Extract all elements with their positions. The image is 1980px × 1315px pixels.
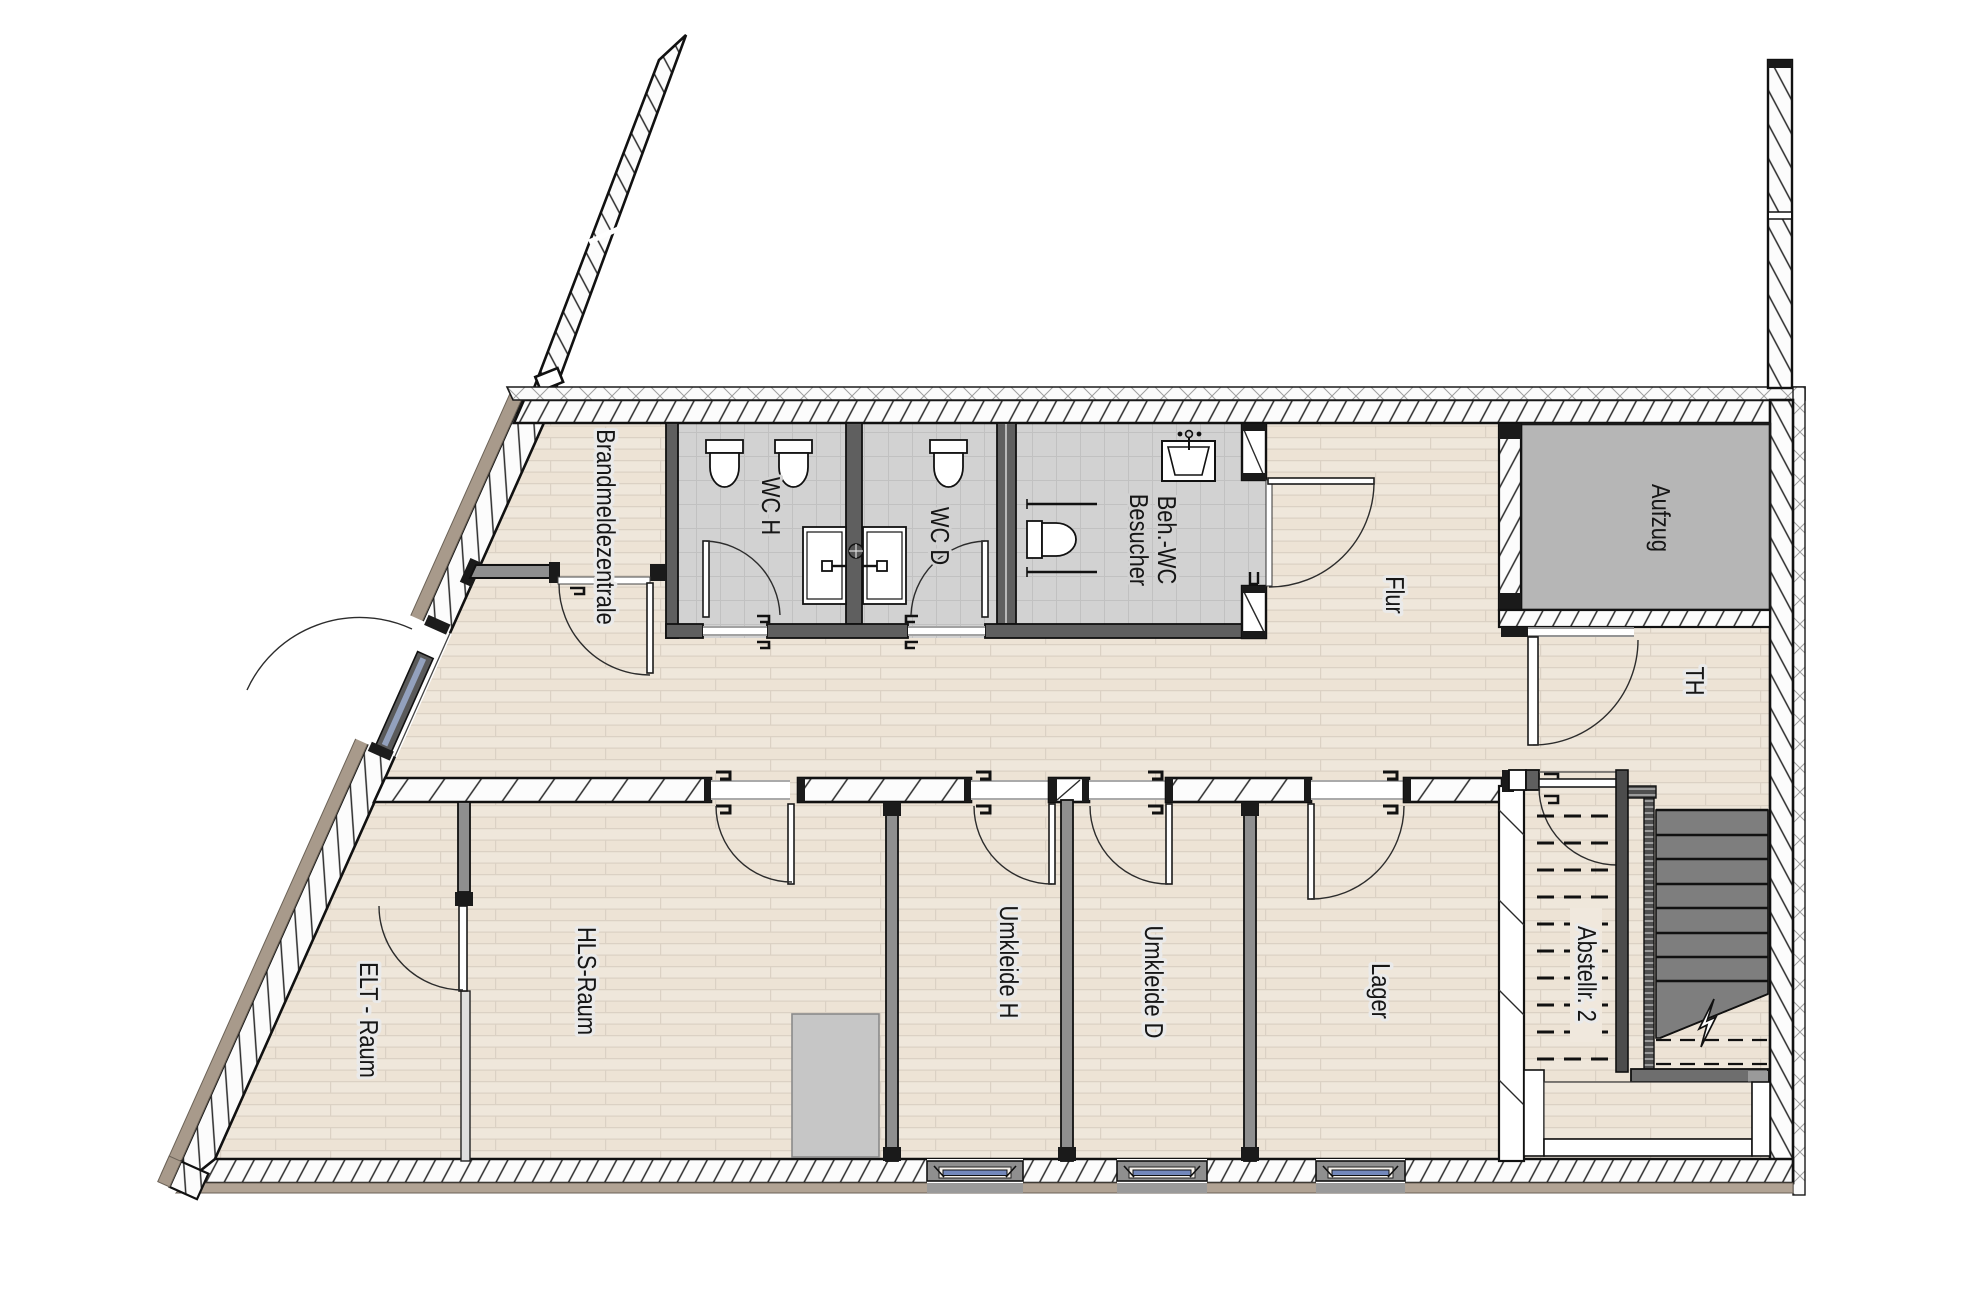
svg-text:TH: TH: [1680, 666, 1710, 695]
svg-text:Brandmeldezentrale: Brandmeldezentrale: [591, 429, 621, 624]
svg-text:WC D: WC D: [925, 507, 955, 565]
svg-text:Umkleide H: Umkleide H: [994, 906, 1024, 1019]
svg-text:Abstellr. 2: Abstellr. 2: [1572, 926, 1602, 1022]
svg-text:Flur: Flur: [1380, 576, 1410, 614]
svg-text:Lager: Lager: [1366, 963, 1396, 1019]
svg-text:HLS-Raum: HLS-Raum: [572, 927, 602, 1035]
svg-text:Aufzug: Aufzug: [1646, 484, 1676, 552]
svg-text:Besucher: Besucher: [1124, 494, 1154, 587]
svg-text:WC H: WC H: [756, 477, 786, 535]
svg-text:ELT - Raum: ELT - Raum: [354, 962, 384, 1078]
svg-text:Beh.-WC: Beh.-WC: [1152, 496, 1182, 585]
svg-text:Umkleide D: Umkleide D: [1139, 926, 1169, 1039]
